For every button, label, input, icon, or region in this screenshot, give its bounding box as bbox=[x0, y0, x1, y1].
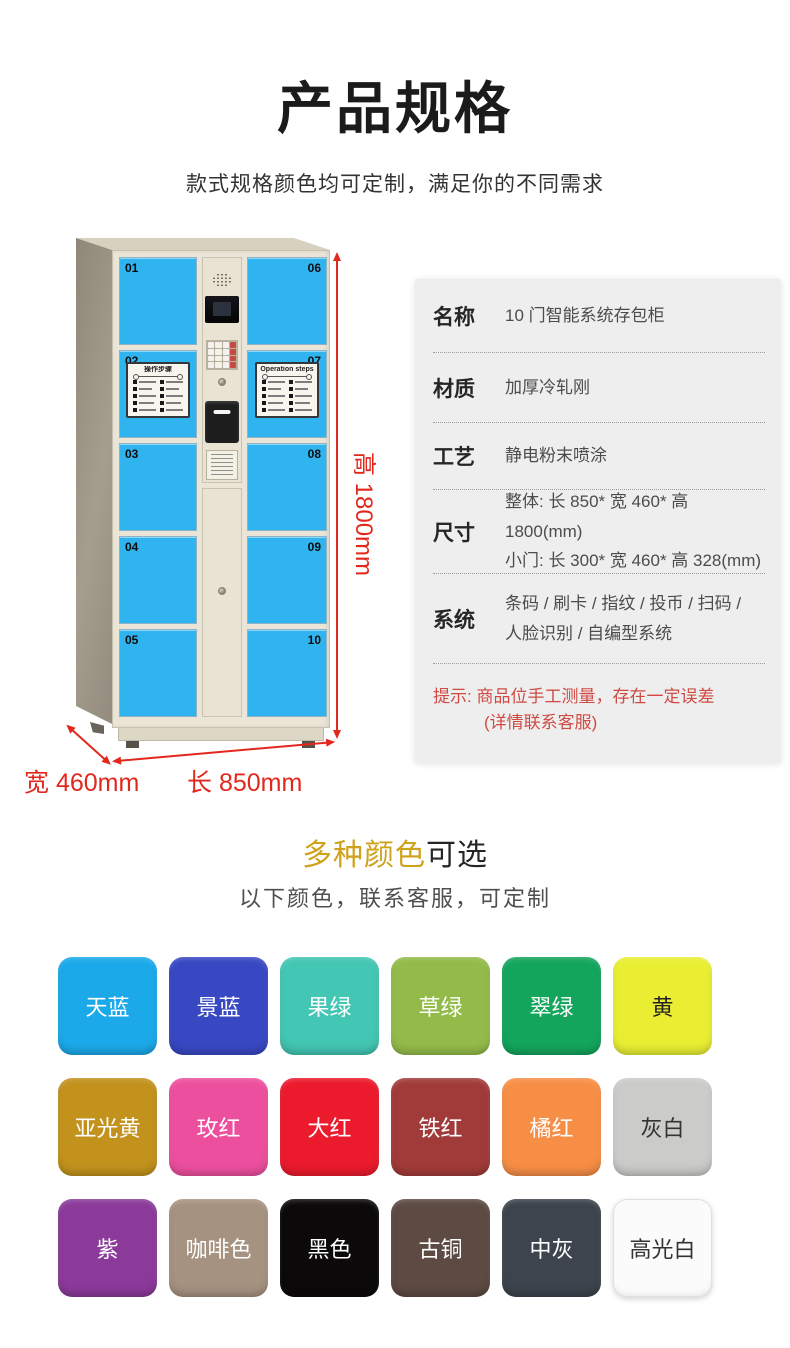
sticker-rule bbox=[135, 376, 181, 377]
spec-value-line: 10 门智能系统存包柜 bbox=[505, 301, 765, 331]
step-text-line bbox=[295, 395, 312, 397]
color-swatch-label: 景蓝 bbox=[196, 990, 240, 1022]
keypad-key bbox=[208, 342, 214, 348]
step-text-line bbox=[139, 402, 154, 404]
spec-note: 提示: 商品位手工测量，存在一定误差 (详情联系客服) bbox=[433, 664, 765, 737]
locker-keypad bbox=[206, 340, 238, 370]
spec-row: 工艺静电粉末喷涂 bbox=[433, 423, 765, 490]
color-swatch-label: 咖啡色 bbox=[185, 1232, 251, 1264]
spec-row: 名称10 门智能系统存包柜 bbox=[433, 279, 765, 353]
sticker-step bbox=[160, 401, 183, 405]
step-number-icon bbox=[133, 387, 137, 391]
sticker-step bbox=[289, 387, 312, 391]
color-swatch-label: 紫 bbox=[96, 1232, 118, 1264]
step-number-icon bbox=[262, 394, 266, 398]
color-swatch-label: 高光白 bbox=[629, 1232, 695, 1264]
step-text-line bbox=[166, 402, 181, 404]
step-text-line bbox=[166, 388, 179, 390]
color-swatch-18: 高光白 bbox=[613, 1199, 712, 1297]
locker-left-door-column: 0102操作步骤030405 bbox=[119, 257, 197, 711]
color-swatch-label: 中灰 bbox=[529, 1232, 573, 1264]
locker-roof bbox=[76, 238, 330, 250]
locker-door-03: 03 bbox=[119, 443, 197, 531]
sticker-step bbox=[262, 380, 285, 384]
page-subtitle: 款式规格颜色均可定制，满足你的不同需求 bbox=[0, 168, 790, 198]
color-swatch-label: 亚光黄 bbox=[74, 1111, 140, 1143]
step-text-line bbox=[268, 381, 285, 383]
color-swatch-label: 翠绿 bbox=[529, 990, 573, 1022]
step-number-icon bbox=[289, 394, 293, 398]
color-swatch-3: 果绿 bbox=[280, 957, 379, 1055]
sticker-step bbox=[289, 401, 312, 405]
step-text-line bbox=[166, 395, 183, 397]
step-number-icon bbox=[289, 380, 293, 384]
keyhole-icon bbox=[218, 587, 226, 595]
sticker-title: Operation steps bbox=[259, 366, 315, 374]
locker-right-door-column: 0607Operation steps080910 bbox=[247, 257, 327, 711]
sticker-steps bbox=[130, 380, 186, 415]
spec-label: 工艺 bbox=[433, 441, 505, 471]
color-swatch-label: 果绿 bbox=[307, 990, 351, 1022]
colors-heading-rest: 可选 bbox=[426, 839, 488, 872]
sticker-title: 操作步骤 bbox=[130, 366, 186, 374]
locker-door-08: 08 bbox=[247, 443, 327, 531]
notice-text-lines bbox=[211, 454, 233, 476]
spec-value: 10 门智能系统存包柜 bbox=[505, 301, 765, 331]
sticker-step-column bbox=[289, 380, 312, 415]
color-swatch-2: 景蓝 bbox=[169, 957, 268, 1055]
locker-door-02: 02操作步骤 bbox=[119, 350, 197, 438]
color-swatch-11: 橘红 bbox=[502, 1078, 601, 1176]
locker-foot bbox=[126, 741, 139, 748]
step-number-icon bbox=[262, 401, 266, 405]
spec-row: 材质加厚冷轧刚 bbox=[433, 353, 765, 423]
locker-control-panel bbox=[202, 257, 242, 483]
door-number: 03 bbox=[125, 447, 138, 461]
keypad-key bbox=[230, 349, 236, 355]
step-text-line bbox=[295, 388, 308, 390]
color-swatch-17: 中灰 bbox=[502, 1199, 601, 1297]
locker-door-04: 04 bbox=[119, 536, 197, 624]
sticker-steps bbox=[259, 380, 315, 415]
color-swatch-8: 玫红 bbox=[169, 1078, 268, 1176]
color-swatch-14: 咖啡色 bbox=[169, 1199, 268, 1297]
locker-door-06: 06 bbox=[247, 257, 327, 345]
locker-door-10: 10 bbox=[247, 629, 327, 717]
keypad-key bbox=[215, 356, 221, 362]
sticker-step bbox=[133, 380, 156, 384]
step-text-line bbox=[139, 388, 152, 390]
width-dimension-label: 宽 460mm bbox=[24, 763, 139, 799]
colors-heading-highlight: 多种颜色 bbox=[302, 839, 426, 872]
step-number-icon bbox=[262, 408, 266, 412]
spec-label: 尺寸 bbox=[433, 517, 505, 547]
sticker-step bbox=[289, 394, 312, 398]
color-swatch-12: 灰白 bbox=[613, 1078, 712, 1176]
keypad-key bbox=[223, 349, 229, 355]
keypad-key bbox=[215, 342, 221, 348]
color-swatch-label: 玫红 bbox=[196, 1111, 240, 1143]
step-number-icon bbox=[160, 394, 164, 398]
step-text-line bbox=[295, 402, 310, 404]
spec-label: 系统 bbox=[433, 604, 505, 634]
step-text-line bbox=[139, 409, 156, 411]
spec-value-line: 静电粉末喷涂 bbox=[505, 441, 765, 471]
sticker-step bbox=[262, 387, 285, 391]
spec-value-line: 条码 / 刷卡 / 指纹 / 投币 / 扫码 / bbox=[505, 589, 765, 619]
locker-lower-panel bbox=[202, 488, 242, 717]
color-swatch-6: 黄 bbox=[613, 957, 712, 1055]
sticker-step bbox=[133, 387, 156, 391]
sticker-step bbox=[262, 401, 285, 405]
colors-heading: 多种颜色可选 bbox=[0, 830, 790, 874]
color-swatch-16: 古铜 bbox=[391, 1199, 490, 1297]
spec-label: 材质 bbox=[433, 373, 505, 403]
spec-row: 尺寸整体: 长 850* 宽 460* 高 1800(mm)小门: 长 300*… bbox=[433, 490, 765, 574]
step-number-icon bbox=[160, 401, 164, 405]
step-number-icon bbox=[160, 408, 164, 412]
door-number: 01 bbox=[125, 261, 138, 275]
color-swatch-9: 大红 bbox=[280, 1078, 379, 1176]
speaker-icon bbox=[212, 273, 232, 287]
step-number-icon bbox=[262, 380, 266, 384]
page-title: 产品规格 bbox=[0, 64, 790, 145]
spec-table: 名称10 门智能系统存包柜材质加厚冷轧刚工艺静电粉末喷涂尺寸整体: 长 850*… bbox=[415, 279, 781, 763]
color-swatch-13: 紫 bbox=[58, 1199, 157, 1297]
keypad-key bbox=[215, 349, 221, 355]
color-swatch-label: 黑色 bbox=[307, 1232, 351, 1264]
locker-side-foot bbox=[90, 722, 104, 734]
color-swatch-1: 天蓝 bbox=[58, 957, 157, 1055]
color-swatch-15: 黑色 bbox=[280, 1199, 379, 1297]
sticker-step-column bbox=[262, 380, 285, 415]
height-dimension-label: 高 1800mm bbox=[349, 452, 384, 576]
step-number-icon bbox=[160, 380, 164, 384]
receipt-printer bbox=[205, 401, 239, 443]
step-number-icon bbox=[133, 408, 137, 412]
door-number: 06 bbox=[308, 261, 321, 275]
color-swatch-label: 铁红 bbox=[418, 1111, 462, 1143]
sticker-step bbox=[160, 394, 183, 398]
spec-value-line: 小门: 长 300* 宽 460* 高 328(mm) bbox=[505, 546, 765, 576]
keyhole-icon bbox=[218, 378, 226, 386]
colors-subtitle: 以下颜色，联系客服，可定制 bbox=[0, 881, 790, 913]
door-number: 09 bbox=[308, 540, 321, 554]
step-text-line bbox=[139, 381, 156, 383]
spec-value-line: 加厚冷轧刚 bbox=[505, 373, 765, 403]
step-text-line bbox=[166, 381, 183, 383]
spec-row: 系统条码 / 刷卡 / 指纹 / 投币 / 扫码 /人脸识别 / 自编型系统 bbox=[433, 574, 765, 664]
color-swatch-label: 古铜 bbox=[418, 1232, 462, 1264]
spec-label: 名称 bbox=[433, 301, 505, 331]
spec-note-line: 提示: 商品位手工测量，存在一定误差 bbox=[433, 684, 765, 710]
spec-rows: 名称10 门智能系统存包柜材质加厚冷轧刚工艺静电粉末喷涂尺寸整体: 长 850*… bbox=[433, 279, 765, 664]
step-number-icon bbox=[262, 387, 266, 391]
length-dimension-label: 长 850mm bbox=[187, 763, 302, 799]
sticker-step bbox=[262, 408, 285, 412]
spec-value: 整体: 长 850* 宽 460* 高 1800(mm)小门: 长 300* 宽… bbox=[505, 487, 765, 576]
color-swatch-label: 大红 bbox=[307, 1111, 351, 1143]
locker-door-07: 07Operation steps bbox=[247, 350, 327, 438]
locker-display-screen bbox=[205, 296, 239, 323]
locker-side-panel bbox=[76, 238, 112, 724]
sticker-step bbox=[133, 394, 156, 398]
sticker-step-column bbox=[133, 380, 156, 415]
color-swatch-5: 翠绿 bbox=[502, 957, 601, 1055]
locker-plinth bbox=[118, 728, 324, 741]
keypad-key bbox=[223, 356, 229, 362]
spec-value: 静电粉末喷涂 bbox=[505, 441, 765, 471]
color-swatch-7: 亚光黄 bbox=[58, 1078, 157, 1176]
sticker-step-column bbox=[160, 380, 183, 415]
color-swatch-4: 草绿 bbox=[391, 957, 490, 1055]
keypad-key bbox=[208, 356, 214, 362]
step-text-line bbox=[268, 409, 285, 411]
step-text-line bbox=[268, 388, 281, 390]
locker-front-face: 0102操作步骤030405 0607Operation steps080910 bbox=[112, 250, 330, 728]
sticker-step bbox=[160, 387, 183, 391]
color-swatch-label: 草绿 bbox=[418, 990, 462, 1022]
keypad-key bbox=[223, 342, 229, 348]
door-number: 05 bbox=[125, 633, 138, 647]
keypad-key bbox=[208, 362, 214, 368]
step-number-icon bbox=[133, 401, 137, 405]
step-number-icon bbox=[289, 387, 293, 391]
keypad-key bbox=[230, 362, 236, 368]
color-swatch-label: 天蓝 bbox=[85, 990, 129, 1022]
height-dimension-arrow bbox=[336, 257, 338, 734]
product-spec-page: 产品规格 款式规格颜色均可定制，满足你的不同需求 0102操作步骤030405 … bbox=[0, 0, 790, 1348]
step-text-line bbox=[268, 395, 285, 397]
spec-value-line: 整体: 长 850* 宽 460* 高 1800(mm) bbox=[505, 487, 765, 547]
keypad-key bbox=[230, 356, 236, 362]
locker-door-01: 01 bbox=[119, 257, 197, 345]
step-number-icon bbox=[289, 401, 293, 405]
step-text-line bbox=[268, 402, 283, 404]
sticker-step bbox=[160, 380, 183, 384]
locker-image: 0102操作步骤030405 0607Operation steps080910 bbox=[60, 236, 360, 761]
sticker-step bbox=[160, 408, 183, 412]
keypad-key bbox=[215, 362, 221, 368]
sticker-rule bbox=[264, 376, 310, 377]
sticker-step bbox=[289, 408, 312, 412]
locker-door-09: 09 bbox=[247, 536, 327, 624]
step-text-line bbox=[295, 381, 312, 383]
sticker-step bbox=[289, 380, 312, 384]
notice-sticker bbox=[206, 450, 238, 480]
color-swatch-label: 橘红 bbox=[529, 1111, 573, 1143]
step-text-line bbox=[139, 395, 156, 397]
step-text-line bbox=[166, 409, 183, 411]
step-text-line bbox=[295, 409, 312, 411]
door-instruction-sticker: Operation steps bbox=[255, 362, 319, 418]
color-swatch-label: 灰白 bbox=[640, 1111, 684, 1143]
color-swatch-10: 铁红 bbox=[391, 1078, 490, 1176]
door-number: 08 bbox=[308, 447, 321, 461]
locker-door-05: 05 bbox=[119, 629, 197, 717]
spec-note-line: (详情联系客服) bbox=[433, 710, 765, 736]
spec-value: 条码 / 刷卡 / 指纹 / 投币 / 扫码 /人脸识别 / 自编型系统 bbox=[505, 589, 765, 649]
sticker-step bbox=[262, 394, 285, 398]
step-number-icon bbox=[160, 387, 164, 391]
door-number: 04 bbox=[125, 540, 138, 554]
step-number-icon bbox=[133, 394, 137, 398]
keypad-key bbox=[230, 342, 236, 348]
step-number-icon bbox=[289, 408, 293, 412]
spec-value: 加厚冷轧刚 bbox=[505, 373, 765, 403]
door-instruction-sticker: 操作步骤 bbox=[126, 362, 190, 418]
keypad-key bbox=[223, 362, 229, 368]
door-number: 10 bbox=[308, 633, 321, 647]
color-swatch-grid: 天蓝景蓝果绿草绿翠绿黄亚光黄玫红大红铁红橘红灰白紫咖啡色黑色古铜中灰高光白 bbox=[58, 957, 712, 1297]
spec-value-line: 人脸识别 / 自编型系统 bbox=[505, 619, 765, 649]
color-swatch-label: 黄 bbox=[651, 990, 673, 1022]
sticker-step bbox=[133, 401, 156, 405]
keypad-key bbox=[208, 349, 214, 355]
step-number-icon bbox=[133, 380, 137, 384]
sticker-step bbox=[133, 408, 156, 412]
